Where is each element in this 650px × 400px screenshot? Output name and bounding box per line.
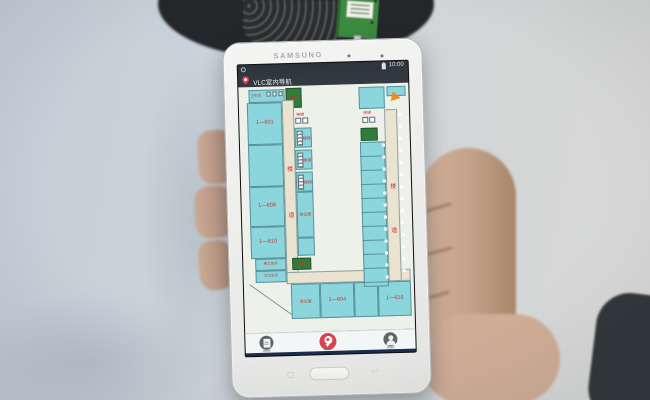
corridor-label: 楼	[287, 167, 293, 173]
nav-label-smudge	[387, 346, 395, 348]
elevator-label: 电梯	[296, 113, 304, 117]
stair-room: 楼梯	[294, 127, 312, 147]
room-1-610: 1—610	[250, 226, 286, 259]
room-number-label: 1—601	[256, 121, 274, 127]
stairwell-green-right	[361, 128, 378, 141]
stairs-label: 楼梯	[298, 262, 306, 266]
room-meeting-left: 会议室	[296, 191, 314, 237]
photo-scene: SAMSUNG 10:00 VLC室内导航 卫生间	[0, 0, 650, 400]
right-palm	[420, 314, 560, 400]
room-meeting-bottom: 会议室	[291, 283, 321, 319]
meeting-room-label: 会议室	[300, 299, 312, 303]
corridor-label: 道	[391, 228, 397, 234]
room-number-label: 1—616	[386, 296, 404, 302]
home-button[interactable]	[309, 366, 349, 380]
elevator-box	[295, 118, 301, 124]
stair-room: 楼梯	[296, 171, 314, 191]
room-toilet-top: 卫生间	[248, 89, 284, 103]
screen: 10:00 VLC室内导航 卫生间 楼梯	[237, 60, 417, 358]
location-arrow-icon	[391, 91, 402, 103]
room-unlabeled-bottom	[354, 282, 379, 318]
battery-icon	[382, 63, 386, 69]
map-pin-logo	[241, 75, 251, 85]
elevator-label: 电梯	[363, 111, 371, 115]
toilet-fixture	[272, 91, 276, 96]
list-icon[interactable]	[259, 336, 273, 350]
nav-label-smudge	[263, 350, 271, 352]
recents-key-icon[interactable]	[287, 372, 293, 378]
room-1-604: 1—604	[320, 282, 355, 318]
stairs-label: 楼梯	[303, 158, 311, 162]
stair-room: 楼梯	[295, 149, 313, 169]
room-number-label: 1—608	[258, 204, 276, 210]
light-sensor-icon	[380, 54, 383, 57]
elevator-box	[362, 117, 368, 123]
elevator-box	[302, 117, 308, 123]
room-unlabeled-small	[298, 237, 315, 255]
notification-icon	[241, 67, 246, 72]
back-key-icon[interactable]: ↩	[371, 367, 378, 376]
room-1-608: 1—608	[249, 186, 285, 227]
toilet-men-label: 男卫生间	[264, 263, 278, 267]
toilet-women-label: 女卫生间	[264, 275, 278, 279]
front-camera-icon	[347, 54, 350, 57]
elevator-box	[369, 117, 375, 123]
dark-clothing-corner	[585, 289, 650, 400]
room-toilet-men: 男卫生间	[255, 258, 286, 271]
wall-shadow-bottom-left	[0, 290, 220, 400]
corridor-label: 楼	[390, 184, 396, 190]
stairs-label: 楼梯	[304, 180, 312, 184]
room-1-601: 1—601	[247, 102, 283, 145]
room-toilet-women: 女卫生间	[255, 270, 286, 283]
room-unlabeled-left	[248, 144, 284, 187]
brand-text: SAMSUNG	[273, 50, 323, 60]
stairs-label: 楼梯	[303, 136, 311, 140]
room-number-label: 1—604	[328, 297, 346, 303]
vlc-led-circuit-board	[336, 0, 380, 39]
pcb-module	[346, 0, 374, 19]
nav-label-smudge	[324, 348, 332, 350]
profile-icon[interactable]	[383, 332, 397, 346]
floorplan-map-canvas[interactable]: 卫生间 楼梯 1—601 1—608 1—610	[238, 83, 415, 334]
toilet-label: 卫生间	[251, 95, 262, 99]
corridor-label: 道	[288, 213, 294, 219]
stairwell-green-bottom: 楼梯	[292, 257, 311, 270]
toilet-fixture	[278, 91, 282, 96]
map-diagonal-edge	[249, 284, 294, 317]
meeting-room-label: 会议室	[299, 212, 311, 216]
room-number-label: 1—610	[259, 240, 277, 246]
room-top-right-a	[358, 86, 385, 109]
clock-text: 10:00	[389, 62, 404, 68]
tablet-device: SAMSUNG 10:00 VLC室内导航 卫生间	[222, 37, 432, 398]
toilet-fixture	[266, 92, 270, 97]
